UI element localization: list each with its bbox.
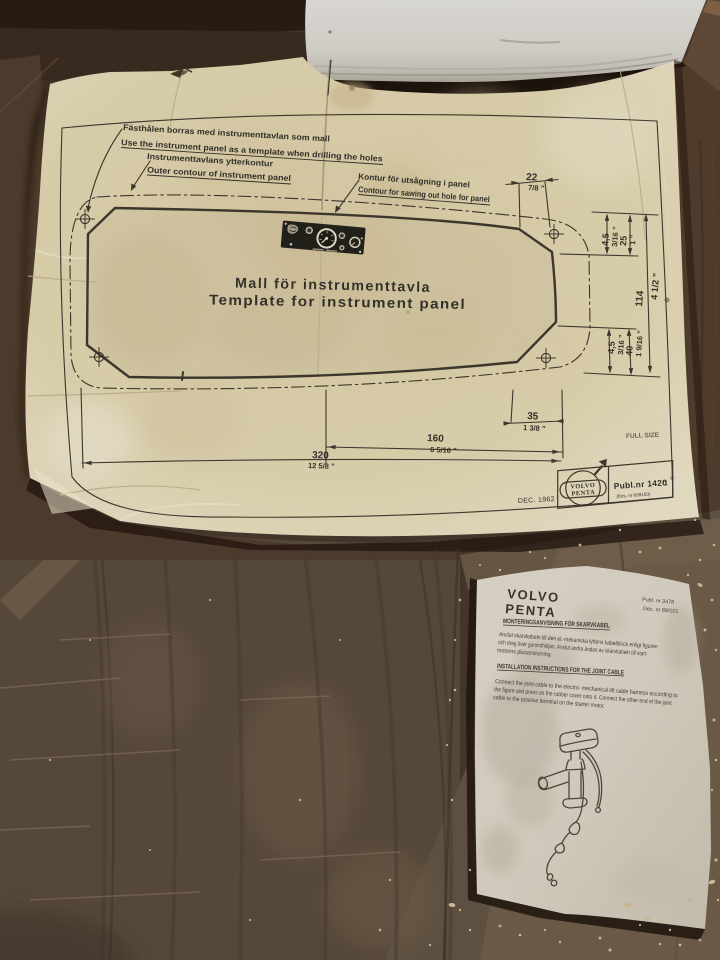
svg-text:6 5/16 ”: 6 5/16 ” (430, 445, 457, 455)
svg-text:320: 320 (312, 450, 329, 462)
svg-text:114: 114 (634, 290, 646, 307)
svg-text:1 3/8 ”: 1 3/8 ” (523, 423, 546, 433)
svg-text:C: C (663, 480, 669, 487)
svg-text:FULL SIZE: FULL SIZE (626, 432, 660, 440)
svg-text:35: 35 (527, 411, 539, 423)
svg-text:22: 22 (526, 172, 538, 184)
svg-text:12 5/8 ”: 12 5/8 ” (308, 461, 335, 471)
svg-text:160: 160 (427, 433, 445, 445)
svg-text:40: 40 (624, 345, 635, 356)
svg-text:1 9/16 ”: 1 9/16 ” (634, 330, 645, 357)
svg-text:7/8 ”: 7/8 ” (528, 183, 545, 193)
svg-text:1 ”: 1 ” (628, 234, 638, 245)
